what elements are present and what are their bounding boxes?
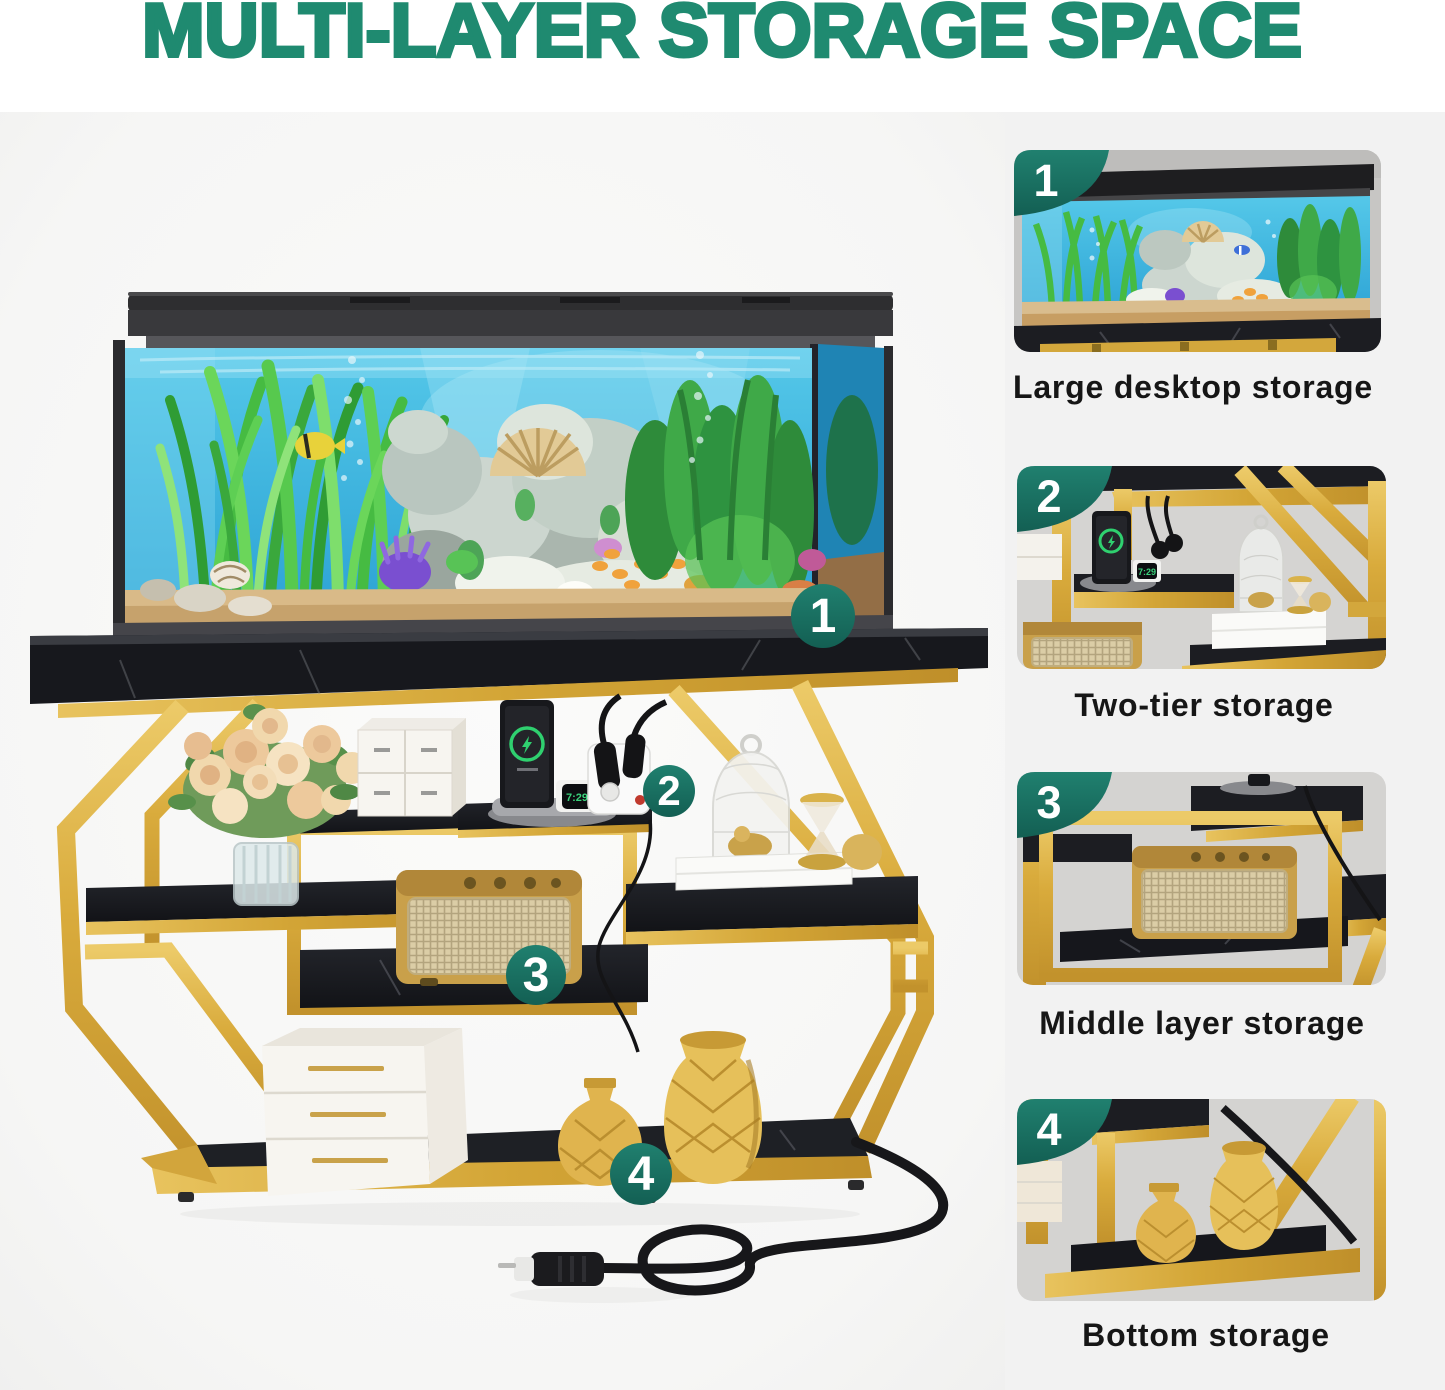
svg-text:2: 2 [657, 767, 680, 814]
svg-text:7:29: 7:29 [1138, 567, 1156, 577]
svg-text:1: 1 [1033, 155, 1058, 206]
svg-text:MULTI-LAYER STORAGE SPACE: MULTI-LAYER STORAGE SPACE [142, 0, 1302, 72]
svg-text:Bottom storage: Bottom storage [1082, 1317, 1330, 1353]
svg-text:Two-tier storage: Two-tier storage [1074, 687, 1333, 723]
svg-text:Middle layer storage: Middle layer storage [1039, 1005, 1364, 1041]
svg-text:3: 3 [1036, 777, 1061, 828]
svg-text:2: 2 [1036, 471, 1061, 522]
svg-text:4: 4 [1036, 1104, 1061, 1155]
svg-text:1: 1 [810, 590, 837, 643]
svg-text:7:29: 7:29 [566, 792, 588, 804]
svg-text:3: 3 [523, 949, 550, 1002]
svg-text:Large desktop storage: Large desktop storage [1013, 369, 1373, 405]
svg-text:4: 4 [628, 1148, 655, 1201]
